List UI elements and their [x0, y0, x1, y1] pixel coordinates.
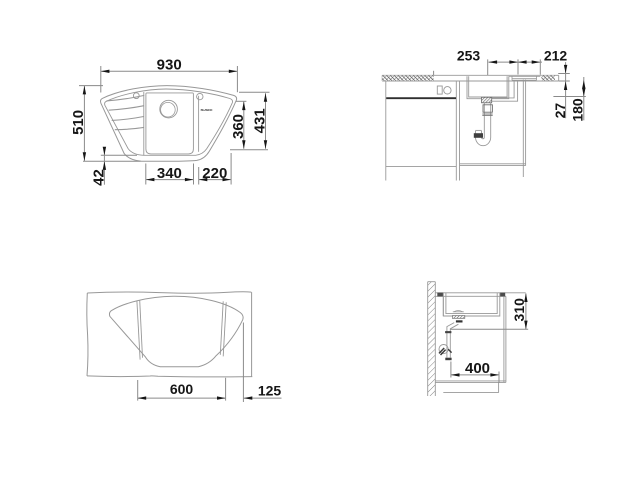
svg-text:340: 340: [157, 165, 182, 182]
svg-text:42: 42: [90, 169, 107, 186]
svg-text:600: 600: [170, 381, 194, 397]
svg-text:360: 360: [230, 114, 247, 139]
svg-text:400: 400: [465, 360, 490, 377]
svg-text:220: 220: [202, 165, 227, 182]
svg-text:125: 125: [258, 382, 282, 398]
svg-text:27: 27: [552, 103, 568, 119]
svg-text:510: 510: [70, 110, 87, 135]
svg-text:431: 431: [251, 108, 268, 133]
svg-text:BLANCO: BLANCO: [201, 108, 213, 112]
svg-text:930: 930: [157, 57, 182, 74]
svg-text:310: 310: [511, 298, 527, 322]
svg-text:180: 180: [570, 98, 586, 122]
svg-text:253: 253: [457, 47, 481, 63]
svg-text:212: 212: [544, 47, 568, 63]
